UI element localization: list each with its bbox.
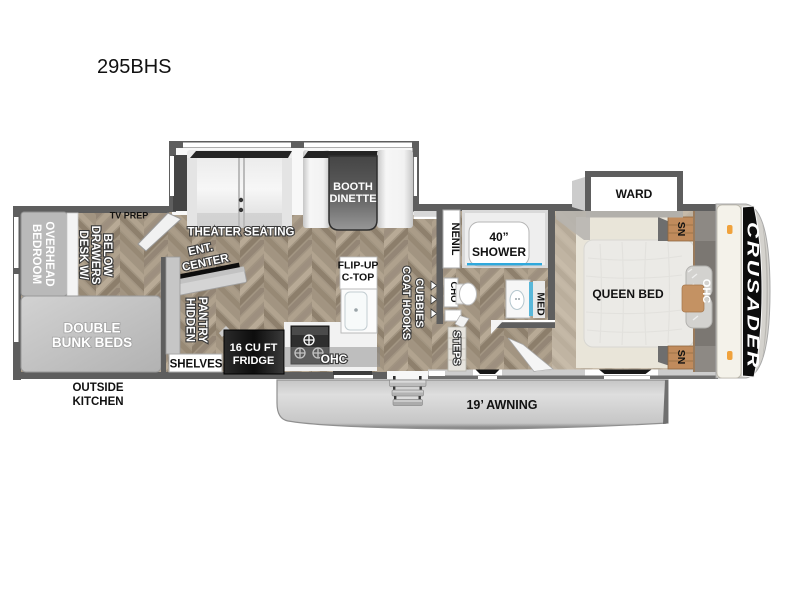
svg-text:19’ AWNING: 19’ AWNING (466, 398, 537, 412)
svg-text:OUTSIDE: OUTSIDE (72, 382, 123, 394)
svg-text:OVERHEAD: OVERHEAD (43, 221, 55, 286)
svg-text:COAT HOOKS: COAT HOOKS (400, 266, 412, 340)
svg-text:OHC: OHC (700, 279, 712, 304)
svg-text:BEDROOM: BEDROOM (30, 224, 42, 284)
svg-text:SN: SN (675, 350, 687, 365)
svg-text:BOOTH: BOOTH (333, 181, 373, 193)
svg-text:MED: MED (535, 292, 547, 316)
svg-text:FRIDGE: FRIDGE (233, 355, 275, 367)
svg-text:C-TOP: C-TOP (342, 272, 374, 284)
svg-text:BUNK BEDS: BUNK BEDS (52, 335, 132, 350)
svg-text:CUBBIES: CUBBIES (413, 278, 425, 328)
svg-text:DRAWERS: DRAWERS (89, 226, 101, 285)
svg-text:OHC: OHC (321, 352, 348, 366)
svg-text:CRUSADER: CRUSADER (744, 222, 762, 370)
svg-text:295BHS: 295BHS (97, 56, 172, 78)
svg-text:PANTRY: PANTRY (196, 297, 208, 343)
svg-text:BELOW: BELOW (101, 234, 113, 277)
svg-text:SHELVES: SHELVES (170, 359, 223, 371)
svg-text:SHOWER: SHOWER (472, 245, 526, 259)
svg-text:HIDDEN: HIDDEN (184, 298, 196, 342)
svg-text:KITCHEN: KITCHEN (72, 396, 123, 408)
svg-text:DOUBLE: DOUBLE (64, 321, 121, 336)
svg-text:DINETTE: DINETTE (329, 193, 376, 205)
svg-text:QUEEN BED: QUEEN BED (592, 287, 664, 301)
svg-text:DESK W/: DESK W/ (77, 230, 89, 280)
svg-text:40”: 40” (489, 230, 508, 244)
svg-text:WARD: WARD (616, 187, 653, 201)
svg-text:16 CU FT: 16 CU FT (230, 342, 278, 354)
svg-text:NENIL: NENIL (449, 223, 461, 256)
svg-text:FLIP-UP: FLIP-UP (338, 260, 379, 272)
svg-text:TV PREP: TV PREP (110, 211, 149, 221)
svg-text:SN: SN (675, 222, 687, 237)
svg-text:STEPS: STEPS (451, 331, 463, 365)
svg-text:THEATER SEATING: THEATER SEATING (188, 227, 295, 239)
